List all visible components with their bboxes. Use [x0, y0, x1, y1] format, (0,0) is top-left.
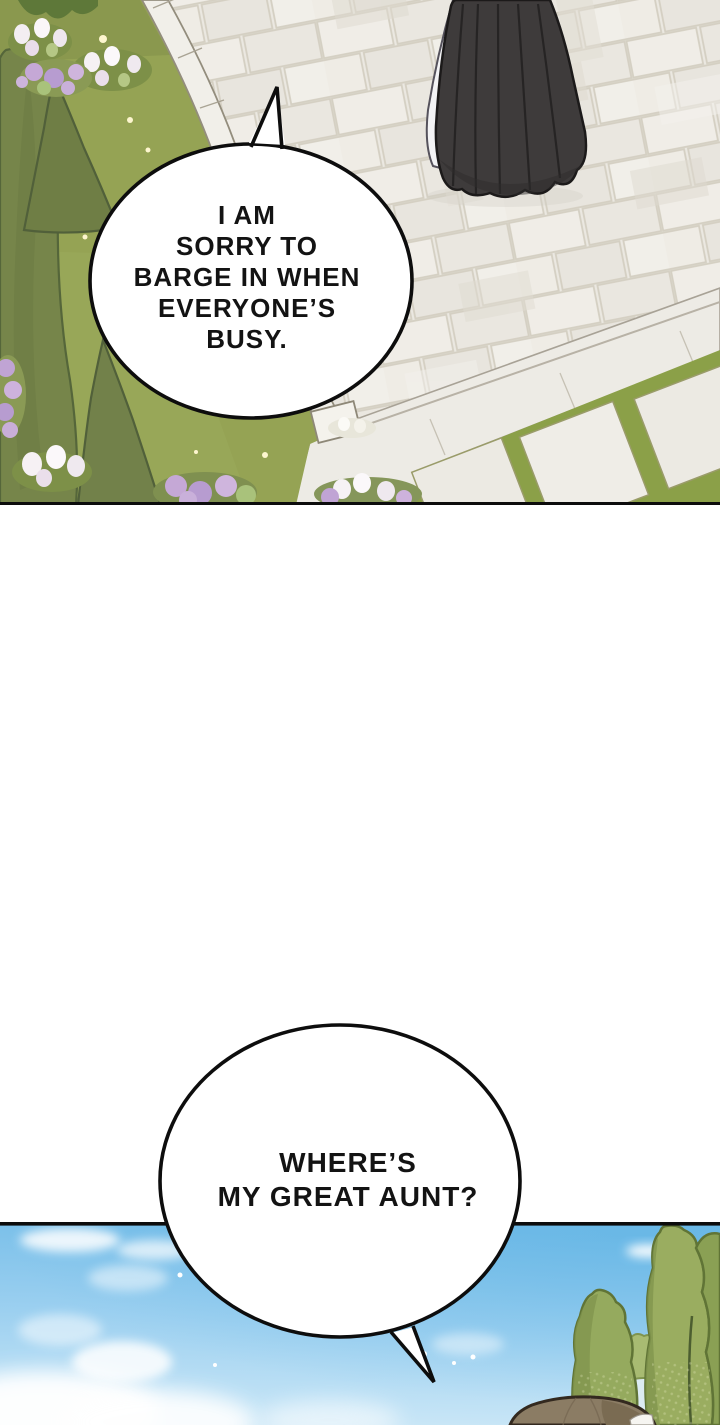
svg-text:EVERYONE’S: EVERYONE’S — [158, 293, 336, 323]
svg-text:MY GREAT AUNT?: MY GREAT AUNT? — [218, 1181, 479, 1212]
svg-text:BUSY.: BUSY. — [206, 324, 288, 354]
svg-text:BARGE IN WHEN: BARGE IN WHEN — [134, 262, 361, 292]
svg-text:I AM: I AM — [218, 200, 276, 230]
svg-text:SORRY TO: SORRY TO — [176, 231, 318, 261]
svg-text:WHERE’S: WHERE’S — [279, 1147, 417, 1178]
